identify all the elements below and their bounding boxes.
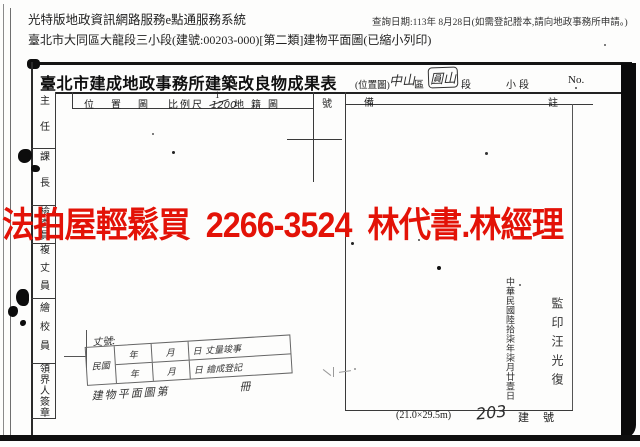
- registration-mark: [64, 356, 86, 357]
- query-date: 查詢日期:113年 8月28日(如需登記謄本,請向地政事務所申請。): [372, 14, 628, 28]
- ink-blob: [31, 165, 40, 172]
- building-no-label: 建號: [518, 409, 568, 425]
- official-cell-chief: 主任: [31, 93, 55, 148]
- ink-blob: [18, 149, 32, 163]
- form-border-top: [30, 62, 632, 65]
- form-border-corner: [27, 59, 40, 69]
- column-scale-label: 比例尺: [168, 96, 204, 111]
- number-column-rule: [313, 92, 314, 182]
- scale-numerator: 1: [215, 90, 220, 100]
- no-label: No.: [568, 74, 584, 86]
- survey-rows: 年 月 日 丈量竣事 年 月 日 繪成登記: [115, 335, 292, 383]
- district-handwritten: 中山: [389, 69, 416, 89]
- official-cell-drafter: 繪校員: [31, 298, 55, 363]
- officials-bottom-rule: [31, 418, 56, 419]
- form-border-bottom: [0, 435, 640, 441]
- system-title: 光特版地政資訊網路服務e點通服務系統: [28, 9, 246, 28]
- scale-fraction: 1 1200: [206, 91, 234, 117]
- district-unit: 區: [414, 76, 424, 91]
- form-title: 臺北市建成地政事務所建築改良物成果表: [40, 70, 337, 94]
- officials-column-rule: [55, 92, 56, 418]
- column-remark-start: 備: [364, 94, 374, 109]
- official-cell-boundary-signature: 領界人簽章: [31, 363, 55, 418]
- header-cell-rule: [72, 92, 73, 109]
- column-location-map: 位置圖: [84, 96, 165, 111]
- scanned-form-page: 光特版地政資訊網路服務e點通服務系統 查詢日期:113年 8月28日(如需登記謄…: [0, 0, 640, 447]
- scan-speck: [152, 133, 154, 135]
- survey-footer-label: 建物平面圖第: [91, 383, 170, 404]
- remark-column-rule: [345, 92, 346, 410]
- table-top-rule: [55, 92, 621, 94]
- scan-speck: [575, 87, 577, 89]
- stamp-date-vertical: 中華民國陸拾柒年柒月廿壹日: [504, 277, 517, 401]
- sheet-size-label: (21.0×29.5m): [396, 410, 451, 421]
- column-cadastral-map: 地籍圖: [234, 96, 285, 111]
- scale-denominator: 1200: [211, 100, 236, 111]
- column-remark-end: 註: [548, 94, 558, 109]
- survey-era-cell: 民國: [86, 346, 117, 385]
- ink-blob: [8, 306, 18, 317]
- building-no-handwritten: 203: [475, 401, 507, 423]
- subsection-unit: 小段: [506, 76, 532, 91]
- scan-speck: [437, 266, 441, 270]
- survey-date-block: 丈號: 民國 年 月 日 丈量竣事 年 月 日 繪成登記 建物平面圖第 冊: [84, 323, 308, 404]
- scan-speck: [172, 151, 175, 154]
- pencil-scribble: [354, 368, 356, 370]
- survey-footer-unit: 冊: [239, 378, 251, 395]
- number-cell-rule: [287, 139, 342, 140]
- section-unit: 段: [461, 76, 471, 91]
- ink-blob: [16, 289, 29, 306]
- pencil-scribble: [333, 367, 334, 377]
- section-handwritten: 圓山: [428, 66, 459, 88]
- official-cell-surveyor: 複丈員: [31, 243, 55, 298]
- form-border-right: [621, 63, 636, 439]
- stamp-seal-officer: 監印汪光復: [549, 297, 566, 399]
- document-line: 臺北市大同區大龍段三小段(建號:00203-000)[第二類]建物平面圖(已縮小…: [28, 31, 431, 48]
- scan-speck: [604, 44, 606, 46]
- ink-blob: [20, 320, 26, 326]
- remark-right-rule: [572, 104, 573, 410]
- column-number: 號: [322, 95, 332, 110]
- map-type-label: (位置圖): [355, 77, 390, 91]
- pencil-scribble: [323, 369, 331, 376]
- scan-speck: [519, 284, 521, 286]
- scan-speck: [485, 152, 488, 155]
- watermark: 法拍屋輕鬆買 2266-3524 林代書.林經理: [2, 197, 563, 248]
